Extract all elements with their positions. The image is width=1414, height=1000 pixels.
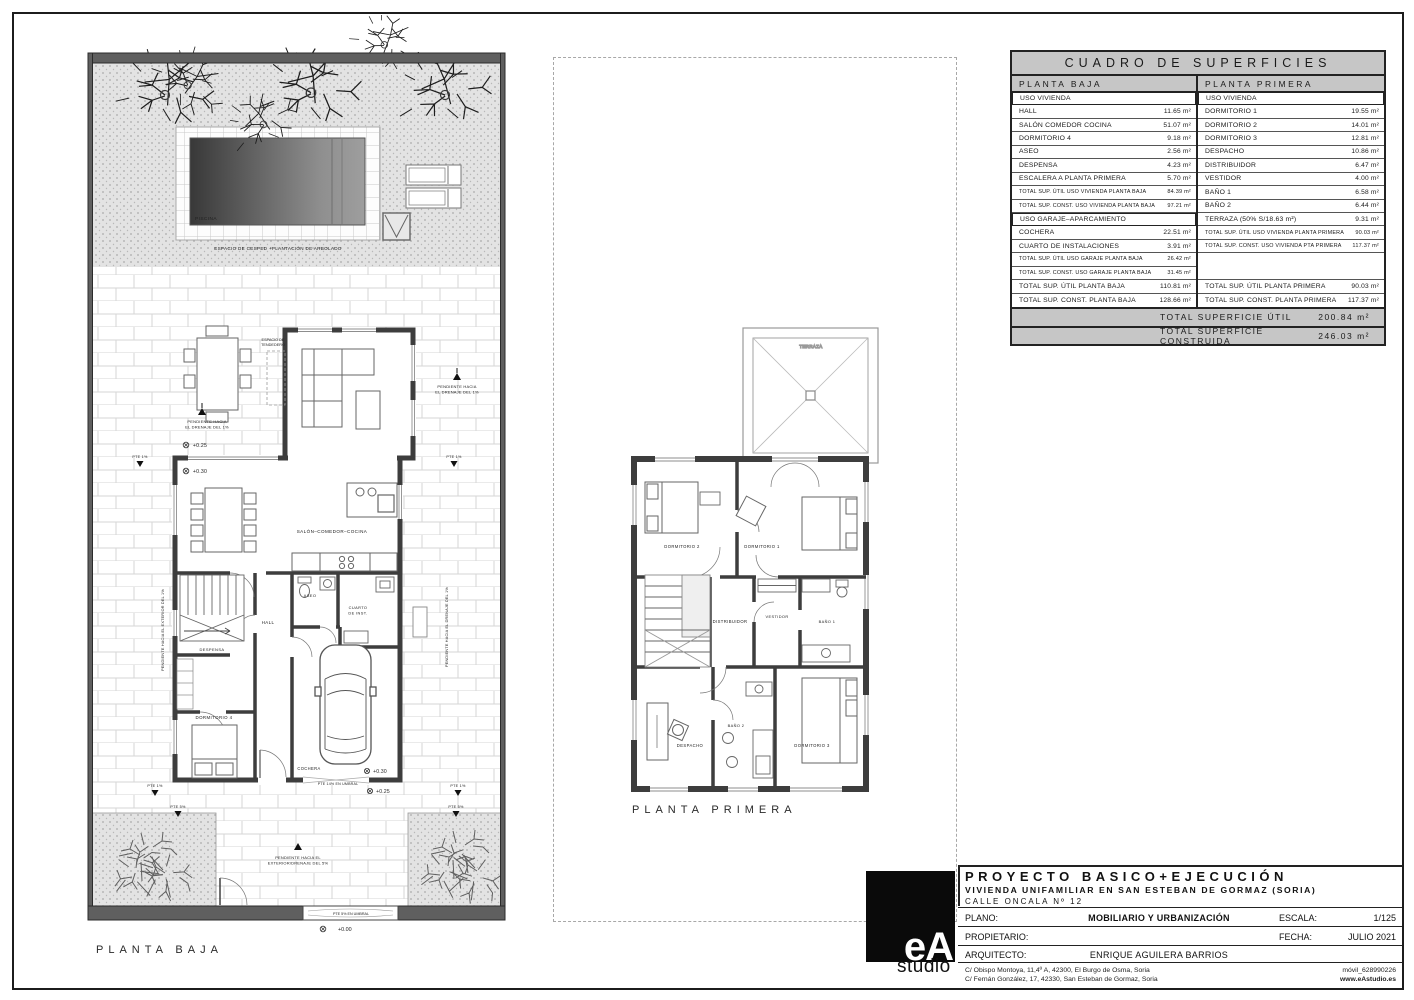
table-row: CUARTO DE INSTALACIONES3.91 m² <box>1012 240 1196 253</box>
escala-label: ESCALA: <box>1279 913 1317 923</box>
bed-dorm4 <box>192 725 237 778</box>
fecha-value: JULIO 2021 <box>1322 932 1396 942</box>
table-row: TOTAL SUP. ÚTIL USO GARAJE PLANTA BAJA26… <box>1012 253 1196 266</box>
table-row: BAÑO 26.44 m² <box>1198 200 1384 213</box>
svg-text:ESPACIO DE: ESPACIO DE <box>262 338 285 342</box>
office-address-2: C/ Fernán González, 17, 42330, San Esteb… <box>965 976 1158 985</box>
svg-text:PTE 5%: PTE 5% <box>170 805 186 809</box>
table-row: DORMITORIO 49.18 m² <box>1012 132 1196 145</box>
first-floor-plan: TERRAZA <box>550 270 970 810</box>
bed-dorm3 <box>802 678 857 763</box>
svg-text:EL DRENAJE DEL 1%: EL DRENAJE DEL 1% <box>185 425 229 430</box>
table-row: DORMITORIO 312.81 m² <box>1198 132 1384 145</box>
svg-text:DESPENSA: DESPENSA <box>200 647 225 652</box>
table-row: VESTIDOR4.00 m² <box>1198 173 1384 186</box>
table-row: ESCALERA A PLANTA PRIMERA5.70 m² <box>1012 173 1196 186</box>
staircase <box>180 575 244 641</box>
svg-text:PENDIENTE HACIA EL: PENDIENTE HACIA EL <box>275 855 321 860</box>
col-header-planta-baja: PLANTA BAJA <box>1012 76 1196 92</box>
svg-text:SALÓN–COMEDOR–COCINA: SALÓN–COMEDOR–COCINA <box>297 528 368 534</box>
svg-text:+0.25: +0.25 <box>193 443 207 449</box>
table-row: TOTAL SUP. ÚTIL USO VIVIENDA PLANTA PRIM… <box>1198 226 1384 239</box>
table-row: TOTAL SUP. CONST. USO VIVIENDA PTA PRIME… <box>1198 240 1384 253</box>
pantry-shelves <box>177 659 193 709</box>
svg-text:PENDIENTE HACIA EL DRENAJE DEL: PENDIENTE HACIA EL DRENAJE DEL 1% <box>445 587 449 667</box>
svg-text:PTE 5%: PTE 5% <box>448 805 464 809</box>
svg-text:TENDEDERO: TENDEDERO <box>261 343 285 347</box>
lawn-label: ESPACIO DE CESPED +PLANTACIÓN DE ARBOLAD… <box>214 245 342 251</box>
table-row: TOTAL SUP. CONST. PLANTA PRIMERA117.37 m… <box>1198 294 1384 307</box>
total-construida-row: TOTAL SUPERFICIE CONSTRUIDA 246.03 m² <box>1012 326 1384 345</box>
ea-studio-logo: eA <box>866 871 955 962</box>
svg-text:PTE 1%: PTE 1% <box>446 455 462 459</box>
table-row: USO VIVIENDA <box>1012 92 1196 105</box>
surface-table-col-first: PLANTA PRIMERA USO VIVIENDA DORMITORIO 1… <box>1198 76 1384 307</box>
table-row: DISTRIBUIDOR6.47 m² <box>1198 159 1384 172</box>
svg-text:DESPACHO: DESPACHO <box>677 743 704 748</box>
car <box>315 645 376 764</box>
table-row: HALL11.65 m² <box>1012 105 1196 118</box>
svg-text:DORMITORIO 1: DORMITORIO 1 <box>744 544 780 549</box>
propietario-label: PROPIETARIO: <box>965 932 1028 942</box>
svg-text:PTE 1%: PTE 1% <box>132 455 148 459</box>
table-row: USO VIVIENDA <box>1198 92 1384 105</box>
project-title: PROYECTO BASICO+EJECUCIÓN <box>965 869 1288 884</box>
svg-text:BAÑO 1: BAÑO 1 <box>819 619 836 624</box>
plano-label: PLANO: <box>965 913 998 923</box>
table-row: ASEO2.56 m² <box>1012 146 1196 159</box>
svg-text:PTE 1%: PTE 1% <box>147 784 163 788</box>
svg-text:EL DRENAJE DEL 1%: EL DRENAJE DEL 1% <box>435 390 479 395</box>
kitchen-island <box>347 483 397 517</box>
title-block: eA studio PROYECTO BASICO+EJECUCIÓN VIVI… <box>864 864 1402 986</box>
svg-text:+0.30: +0.30 <box>193 469 207 475</box>
wardrobe-vestidor <box>758 579 796 592</box>
svg-text:+0.25: +0.25 <box>376 789 390 795</box>
office-address-1: C/ Obispo Montoya, 11,4º A, 42300, El Bu… <box>965 967 1150 976</box>
bed-dorm1 <box>802 497 857 550</box>
coffee-table <box>356 391 380 429</box>
table-row: SALÓN COMEDOR COCINA51.07 m² <box>1012 119 1196 132</box>
pool-label: PISCINA <box>195 216 217 222</box>
svg-text:+0.30: +0.30 <box>373 769 387 775</box>
table-row: COCHERA22.51 m² <box>1012 226 1196 239</box>
svg-text:PENDIENTE HACIA EL EXTERIOR DE: PENDIENTE HACIA EL EXTERIOR DEL 1% <box>161 589 165 671</box>
surface-table-title: CUADRO DE SUPERFICIES <box>1012 52 1384 76</box>
svg-text:EXTERIOR/DRENAJE DEL 5%: EXTERIOR/DRENAJE DEL 5% <box>268 861 329 866</box>
dining-table <box>191 488 256 552</box>
project-address: CALLE ONCALA Nº 12 <box>965 897 1083 906</box>
table-row: TOTAL SUP. CONST. PLANTA BAJA128.66 m² <box>1012 294 1196 307</box>
arquitecto-value: ENRIQUE AGUILERA BARRIOS <box>1039 950 1279 960</box>
bed-dorm2 <box>645 482 698 533</box>
svg-text:PTE 1%: PTE 1% <box>450 784 466 788</box>
svg-text:DORMITORIO 3: DORMITORIO 3 <box>794 743 830 748</box>
surface-table-col-ground: PLANTA BAJA USO VIVIENDA HALL11.65 m² SA… <box>1012 76 1198 307</box>
arquitecto-label: ARQUITECTO: <box>965 950 1026 960</box>
pool: PISCINA <box>176 127 380 240</box>
first-floor-title: PLANTA PRIMERA <box>632 804 797 816</box>
kitchen-counter <box>292 553 397 571</box>
svg-text:BAÑO 2: BAÑO 2 <box>728 723 745 728</box>
col-header-planta-primera: PLANTA PRIMERA <box>1198 76 1384 92</box>
svg-text:COCHERA: COCHERA <box>297 766 320 771</box>
fecha-label: FECHA: <box>1279 932 1312 942</box>
phone: móvil_628990226 <box>1342 967 1396 976</box>
svg-text:PTE 14% EN UMBRAL: PTE 14% EN UMBRAL <box>318 782 359 786</box>
plano-value: MOBILIARIO Y URBANIZACIÓN <box>1039 913 1279 923</box>
svg-text:DE INST.: DE INST. <box>348 611 367 616</box>
table-row: DORMITORIO 214.01 m² <box>1198 119 1384 132</box>
svg-text:DORMITORIO 4: DORMITORIO 4 <box>196 715 233 720</box>
surface-table: CUADRO DE SUPERFICIES PLANTA BAJA USO VI… <box>1010 50 1386 346</box>
svg-text:PENDIENTE HACIA: PENDIENTE HACIA <box>437 384 476 389</box>
table-row: TOTAL SUP. ÚTIL PLANTA PRIMERA90.03 m² <box>1198 280 1384 293</box>
table-row: BAÑO 16.58 m² <box>1198 186 1384 199</box>
svg-text:PTE 5% EN UMBRAL: PTE 5% EN UMBRAL <box>333 912 369 916</box>
table-row: TERRAZA (50% S/18.63 m²)9.31 m² <box>1198 213 1384 226</box>
terrace-label: TERRAZA <box>799 344 822 349</box>
svg-text:DORMITORIO 2: DORMITORIO 2 <box>664 544 700 549</box>
svg-text:ASEO: ASEO <box>304 593 317 598</box>
escala-value: 1/125 <box>1322 913 1396 923</box>
svg-text:DISTRIBUIDOR: DISTRIBUIDOR <box>713 619 748 624</box>
ground-floor-title: PLANTA BAJA <box>96 944 223 956</box>
table-row: DESPENSA4.23 m² <box>1012 159 1196 172</box>
total-util-row: TOTAL SUPERFICIE ÚTIL 200.84 m² <box>1012 307 1384 326</box>
project-subtitle: VIVIENDA UNIFAMILIAR EN SAN ESTEBAN DE G… <box>965 885 1316 895</box>
svg-text:VESTIDOR: VESTIDOR <box>765 614 788 619</box>
terrace: TERRAZA <box>743 328 878 463</box>
table-row-empty <box>1198 253 1384 280</box>
table-row: DESPACHO10.86 m² <box>1198 146 1384 159</box>
first-floor-staircase <box>645 575 710 667</box>
ground-floor-plan: PISCINA ESPACIO DE CESPED +PLANTACIÓN DE… <box>80 15 510 935</box>
table-row: TOTAL SUP. ÚTIL USO VIVIENDA PLANTA BAJA… <box>1012 186 1196 199</box>
table-row: USO GARAJE–APARCAMIENTO <box>1012 213 1196 226</box>
table-row: TOTAL SUP. CONST. USO GARAJE PLANTA BAJA… <box>1012 267 1196 280</box>
garden-shower <box>383 213 410 240</box>
dorm1-bench <box>700 492 720 505</box>
website: www.eAstudio.es <box>1340 976 1396 985</box>
level-marker-000: +0.00 <box>320 926 351 933</box>
table-row: DORMITORIO 119.55 m² <box>1198 105 1384 118</box>
svg-text:+0.00: +0.00 <box>338 927 352 933</box>
drawing-sheet: PISCINA ESPACIO DE CESPED +PLANTACIÓN DE… <box>0 0 1414 1000</box>
table-row: TOTAL SUP. ÚTIL PLANTA BAJA110.81 m² <box>1012 280 1196 293</box>
svg-text:PENDIENTE HACIA: PENDIENTE HACIA <box>187 419 226 424</box>
svg-text:CUARTO: CUARTO <box>349 605 368 610</box>
svg-text:HALL: HALL <box>262 620 275 625</box>
logo-studio-text: studio <box>897 956 951 978</box>
table-row: TOTAL SUP. CONST. USO VIVIENDA PLANTA BA… <box>1012 200 1196 213</box>
